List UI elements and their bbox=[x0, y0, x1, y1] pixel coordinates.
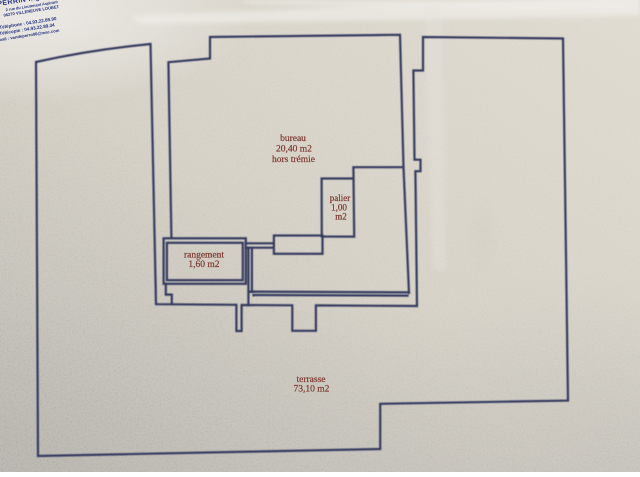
svg-text:1,60 m2: 1,60 m2 bbox=[188, 260, 219, 270]
svg-text:20,40 m2: 20,40 m2 bbox=[276, 145, 312, 155]
svg-text:m2: m2 bbox=[335, 212, 347, 222]
svg-text:73,10 m2: 73,10 m2 bbox=[294, 385, 330, 395]
svg-text:hors trémie: hors trémie bbox=[272, 155, 315, 165]
svg-text:rangement: rangement bbox=[184, 251, 224, 261]
svg-text:terrasse: terrasse bbox=[296, 375, 325, 385]
svg-text:palier: palier bbox=[330, 193, 351, 203]
svg-text:bureau: bureau bbox=[280, 134, 306, 144]
